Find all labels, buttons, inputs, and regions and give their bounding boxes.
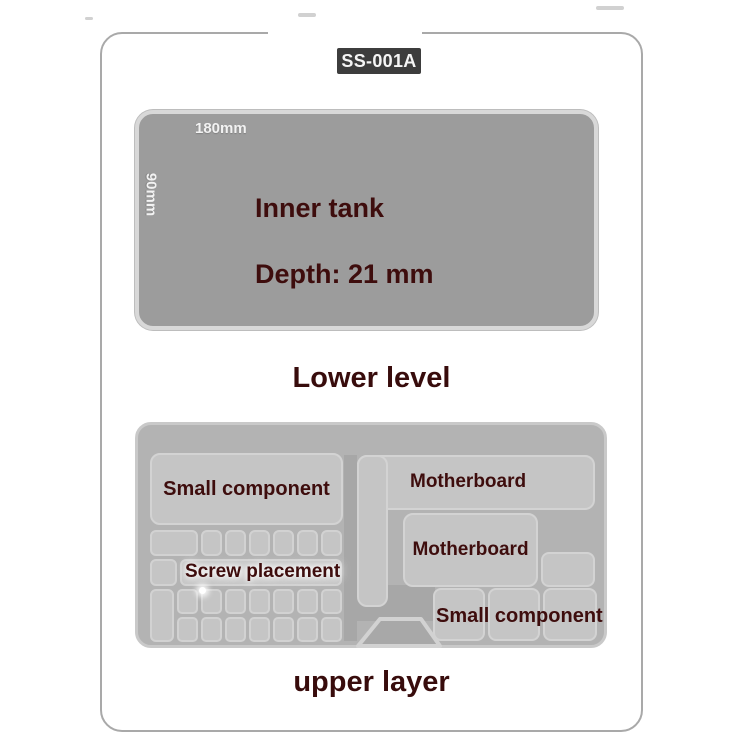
small-component-label-right: Small component	[436, 605, 603, 628]
tank-depth-dimension: 90mm	[143, 170, 160, 220]
screw-slot	[273, 589, 294, 614]
screw-slot	[225, 530, 246, 556]
screw-slot	[297, 589, 318, 614]
motherboard-compartment-mid: Motherboard	[403, 513, 538, 587]
screw-slot	[249, 530, 270, 556]
inner-tank-line2: Depth: 21 mm	[255, 259, 434, 289]
screw-slot-tall	[150, 589, 174, 642]
small-compartment-right	[541, 552, 595, 587]
inner-tank: 180mm 90mm Inner tank Depth: 21 mm	[135, 110, 598, 330]
small-component-label-left: Small component	[163, 478, 330, 501]
screw-slot	[201, 617, 222, 642]
decor-dash-center	[298, 13, 316, 17]
screw-grid-row1	[150, 530, 342, 556]
screw-slot	[225, 589, 246, 614]
screw-slot	[150, 530, 198, 556]
highlight-glare	[199, 587, 206, 594]
screw-slot	[177, 589, 198, 614]
motherboard-top-label: Motherboard	[410, 471, 526, 493]
screw-slot	[273, 530, 294, 556]
screw-slot	[321, 589, 342, 614]
screw-slot	[225, 617, 246, 642]
lower-level-caption: Lower level	[100, 362, 643, 395]
screw-slot	[297, 617, 318, 642]
screw-slot	[249, 617, 270, 642]
inner-tank-line1: Inner tank	[255, 193, 384, 223]
screw-slot	[321, 530, 342, 556]
frame-border-gap	[268, 29, 422, 39]
decor-dash-left	[85, 17, 93, 20]
screw-slot	[201, 530, 222, 556]
screw-grid-lower	[177, 589, 342, 642]
screw-slot	[150, 559, 177, 586]
inner-tank-title: Inner tank Depth: 21 mm	[255, 192, 434, 291]
screw-grid-rows34	[150, 589, 342, 642]
screw-slot	[273, 617, 294, 642]
upper-layer-caption: upper layer	[100, 666, 643, 699]
screw-grid	[150, 530, 342, 642]
tank-width-dimension: 180mm	[195, 120, 247, 137]
screw-slot	[321, 617, 342, 642]
motherboard-compartment-join	[359, 470, 386, 525]
screw-slot	[249, 589, 270, 614]
small-component-compartment-left: Small component	[150, 453, 343, 525]
screw-slot	[297, 530, 318, 556]
screw-placement-label: Screw placement	[185, 561, 340, 583]
model-badge: SS-001A	[337, 48, 421, 74]
decor-dash-right	[596, 6, 624, 10]
thumb-notch	[350, 612, 446, 648]
screw-slot	[177, 617, 198, 642]
motherboard-mid-label: Motherboard	[412, 539, 528, 561]
upper-tray: Small component Screw placement Motherbo…	[135, 422, 607, 648]
